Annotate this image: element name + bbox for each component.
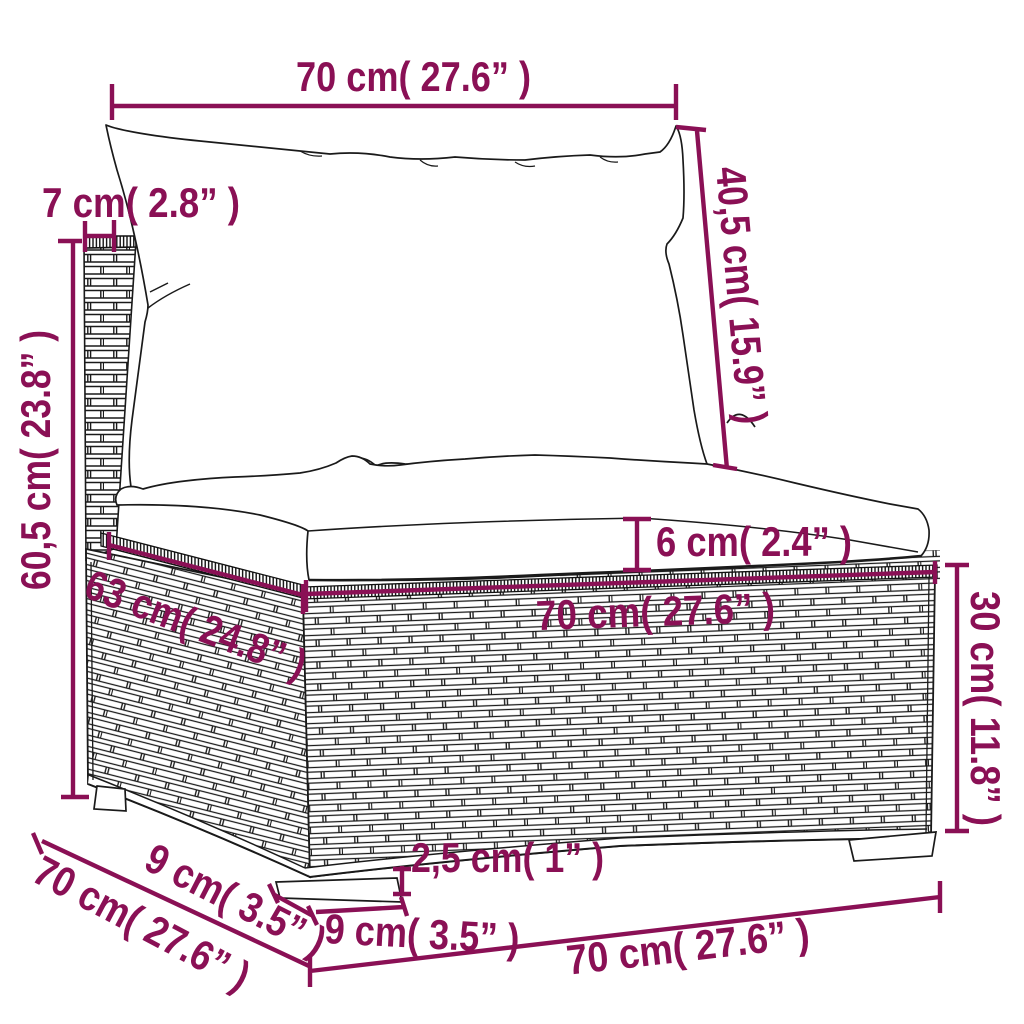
svg-text:2,5 cm( 1” ): 2,5 cm( 1” ) — [411, 834, 604, 881]
svg-text:70 cm( 27.6” ): 70 cm( 27.6” ) — [296, 53, 531, 100]
svg-text:30 cm( 11.8” ): 30 cm( 11.8” ) — [962, 591, 1009, 826]
svg-text:7 cm( 2.8” ): 7 cm( 2.8” ) — [42, 179, 240, 226]
svg-text:70 cm( 27.6” ): 70 cm( 27.6” ) — [535, 584, 775, 639]
svg-text:6 cm( 2.4” ): 6 cm( 2.4” ) — [656, 518, 852, 565]
svg-text:60,5 cm( 23.8” ): 60,5 cm( 23.8” ) — [12, 330, 59, 590]
